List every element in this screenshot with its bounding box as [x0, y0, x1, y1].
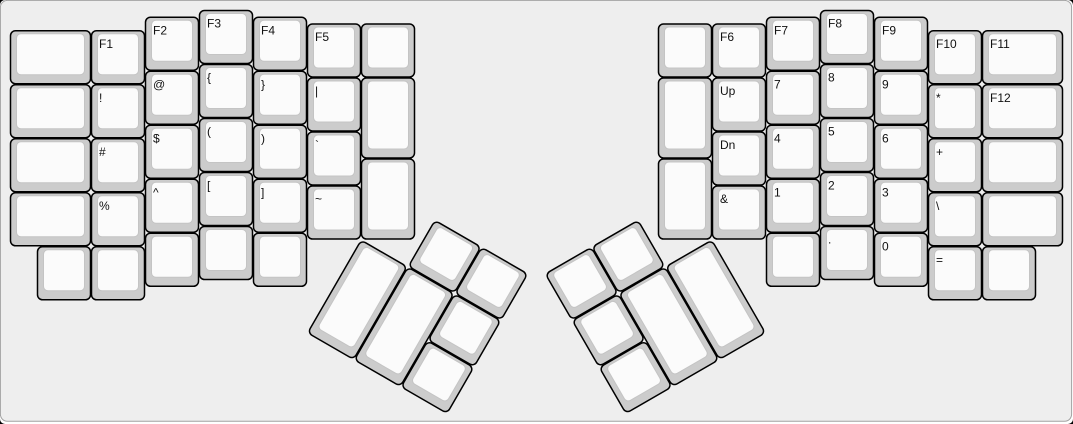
svg-text:F12: F12	[990, 91, 1011, 105]
svg-text:+: +	[936, 145, 943, 159]
svg-text:F6: F6	[720, 30, 734, 44]
svg-text:2: 2	[828, 179, 835, 193]
svg-text:1: 1	[774, 185, 781, 199]
svg-text:F4: F4	[261, 23, 275, 37]
svg-text:{: {	[207, 71, 211, 85]
svg-text:9: 9	[882, 77, 889, 91]
svg-text:}: }	[261, 77, 265, 91]
svg-text:3: 3	[882, 185, 889, 199]
svg-text:#: #	[99, 145, 106, 159]
svg-text:0: 0	[882, 239, 889, 253]
svg-text:5: 5	[828, 125, 835, 139]
svg-text:&: &	[720, 192, 728, 206]
svg-text:!: !	[99, 91, 102, 105]
svg-text:`: `	[315, 138, 319, 152]
svg-text:F10: F10	[936, 37, 957, 51]
svg-text:|: |	[315, 84, 318, 98]
svg-text:4: 4	[774, 131, 781, 145]
svg-text:F11: F11	[990, 37, 1010, 51]
svg-text:Up: Up	[720, 84, 736, 98]
svg-text:@: @	[153, 77, 165, 91]
svg-text:~: ~	[315, 192, 322, 206]
svg-text:7: 7	[774, 77, 781, 91]
svg-text:=: =	[936, 253, 943, 267]
svg-text:Dn: Dn	[720, 138, 735, 152]
svg-text:$: $	[153, 131, 160, 145]
svg-text:): )	[261, 131, 265, 145]
svg-text:6: 6	[882, 131, 889, 145]
svg-text:(: (	[207, 125, 211, 139]
svg-text:^: ^	[153, 185, 159, 199]
svg-text:F3: F3	[207, 17, 221, 31]
svg-text:F7: F7	[774, 23, 788, 37]
svg-text:F1: F1	[99, 37, 113, 51]
svg-text:F8: F8	[828, 17, 842, 31]
svg-text:F5: F5	[315, 30, 329, 44]
svg-text:*: *	[936, 91, 941, 105]
svg-text:F2: F2	[153, 23, 167, 37]
svg-text:F9: F9	[882, 23, 896, 37]
svg-text:]: ]	[261, 185, 264, 199]
svg-text:8: 8	[828, 71, 835, 85]
svg-text:%: %	[99, 199, 110, 213]
svg-text:.: .	[828, 233, 831, 247]
